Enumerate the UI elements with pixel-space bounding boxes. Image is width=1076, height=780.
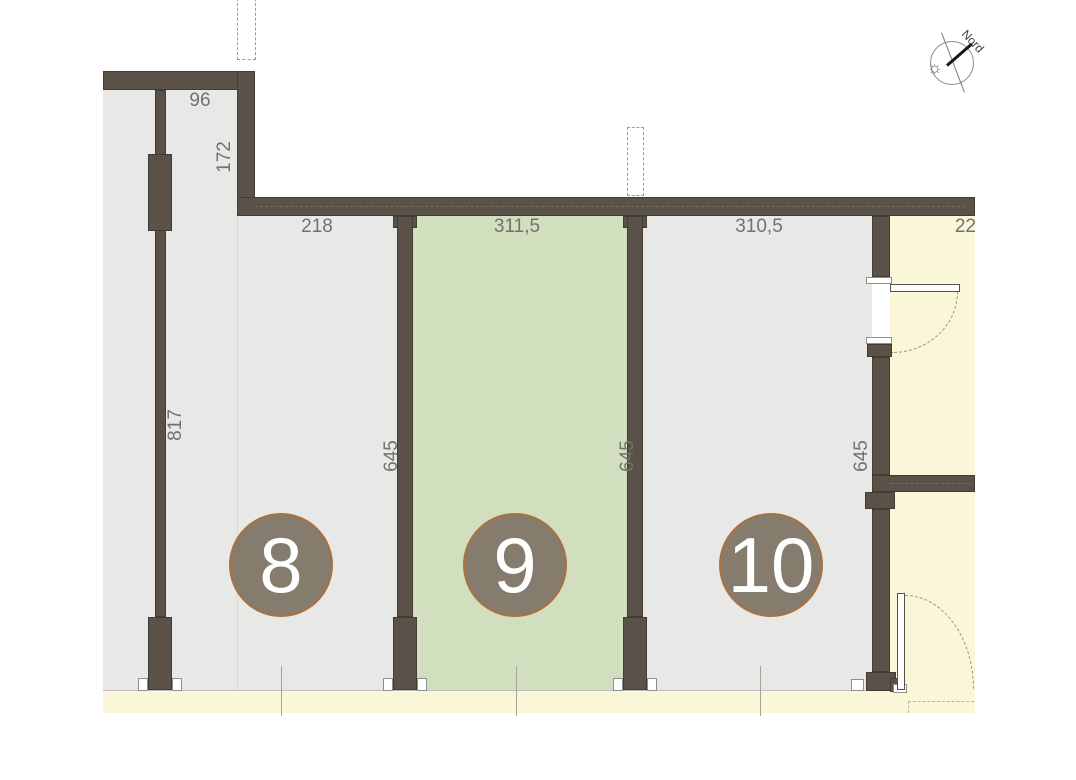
wall-left-pilaster bbox=[148, 154, 172, 231]
overhead-opening-2 bbox=[627, 127, 644, 196]
corridor-bottom bbox=[103, 691, 975, 713]
frame-p1-a bbox=[383, 678, 393, 691]
frame-left-foot-b bbox=[172, 678, 182, 691]
door-1-threshold-lower bbox=[866, 337, 892, 344]
door-1-threshold bbox=[866, 277, 892, 284]
wall-right-stub bbox=[872, 216, 890, 277]
dimension-311-5: 311,5 bbox=[477, 217, 557, 237]
dimension-22: 22 bbox=[936, 217, 976, 237]
dimension-218: 218 bbox=[277, 217, 357, 237]
frame-p2-b bbox=[647, 678, 657, 691]
frame-right-foot bbox=[851, 679, 864, 691]
unit-badge-10[interactable]: 10 bbox=[719, 513, 823, 617]
floor-joint-line bbox=[237, 216, 238, 690]
wall-left-foot bbox=[148, 617, 172, 690]
dimension-96: 96 bbox=[160, 91, 240, 111]
unit-9-floor-highlight bbox=[413, 216, 627, 690]
frame-p1-b bbox=[417, 678, 427, 691]
dimension-172: 172 bbox=[215, 127, 235, 187]
dimension-645-c: 645 bbox=[852, 426, 872, 486]
wall-right-cap bbox=[867, 344, 892, 357]
frame-p2-a bbox=[613, 678, 623, 691]
wall-right-low bbox=[872, 509, 890, 672]
dimension-310-5: 310,5 bbox=[719, 217, 799, 237]
partition-8-9-foot bbox=[393, 617, 417, 690]
partition-9-10 bbox=[627, 216, 643, 617]
door-1-leaf bbox=[890, 284, 960, 292]
overhead-opening-3 bbox=[908, 701, 974, 713]
wall-right-block bbox=[865, 492, 895, 509]
sun-icon: ☼ bbox=[927, 60, 943, 76]
wall-top-left bbox=[103, 71, 255, 90]
overhead-opening-1 bbox=[237, 0, 256, 60]
partition-8-9 bbox=[397, 216, 413, 617]
dimension-645-a: 645 bbox=[382, 426, 402, 486]
dimension-817: 817 bbox=[166, 395, 186, 455]
unit-badge-9[interactable]: 9 bbox=[463, 513, 567, 617]
wall-right-tee-axis bbox=[890, 483, 970, 484]
floor-plan: 96 172 218 311,5 310,5 22 817 645 645 64… bbox=[0, 0, 1076, 780]
unit-badge-8[interactable]: 8 bbox=[229, 513, 333, 617]
dimension-645-b: 645 bbox=[618, 426, 638, 486]
wall-right-mid bbox=[872, 357, 890, 475]
unit-9-axis-tick bbox=[516, 666, 517, 716]
unit-front-line bbox=[103, 690, 872, 691]
door-2-leaf bbox=[897, 593, 905, 690]
frame-left-foot-a bbox=[138, 678, 148, 691]
wall-top-axis bbox=[255, 206, 965, 207]
unit-8-axis-tick bbox=[281, 666, 282, 716]
partition-9-10-foot bbox=[623, 617, 647, 690]
unit-10-axis-tick bbox=[760, 666, 761, 716]
